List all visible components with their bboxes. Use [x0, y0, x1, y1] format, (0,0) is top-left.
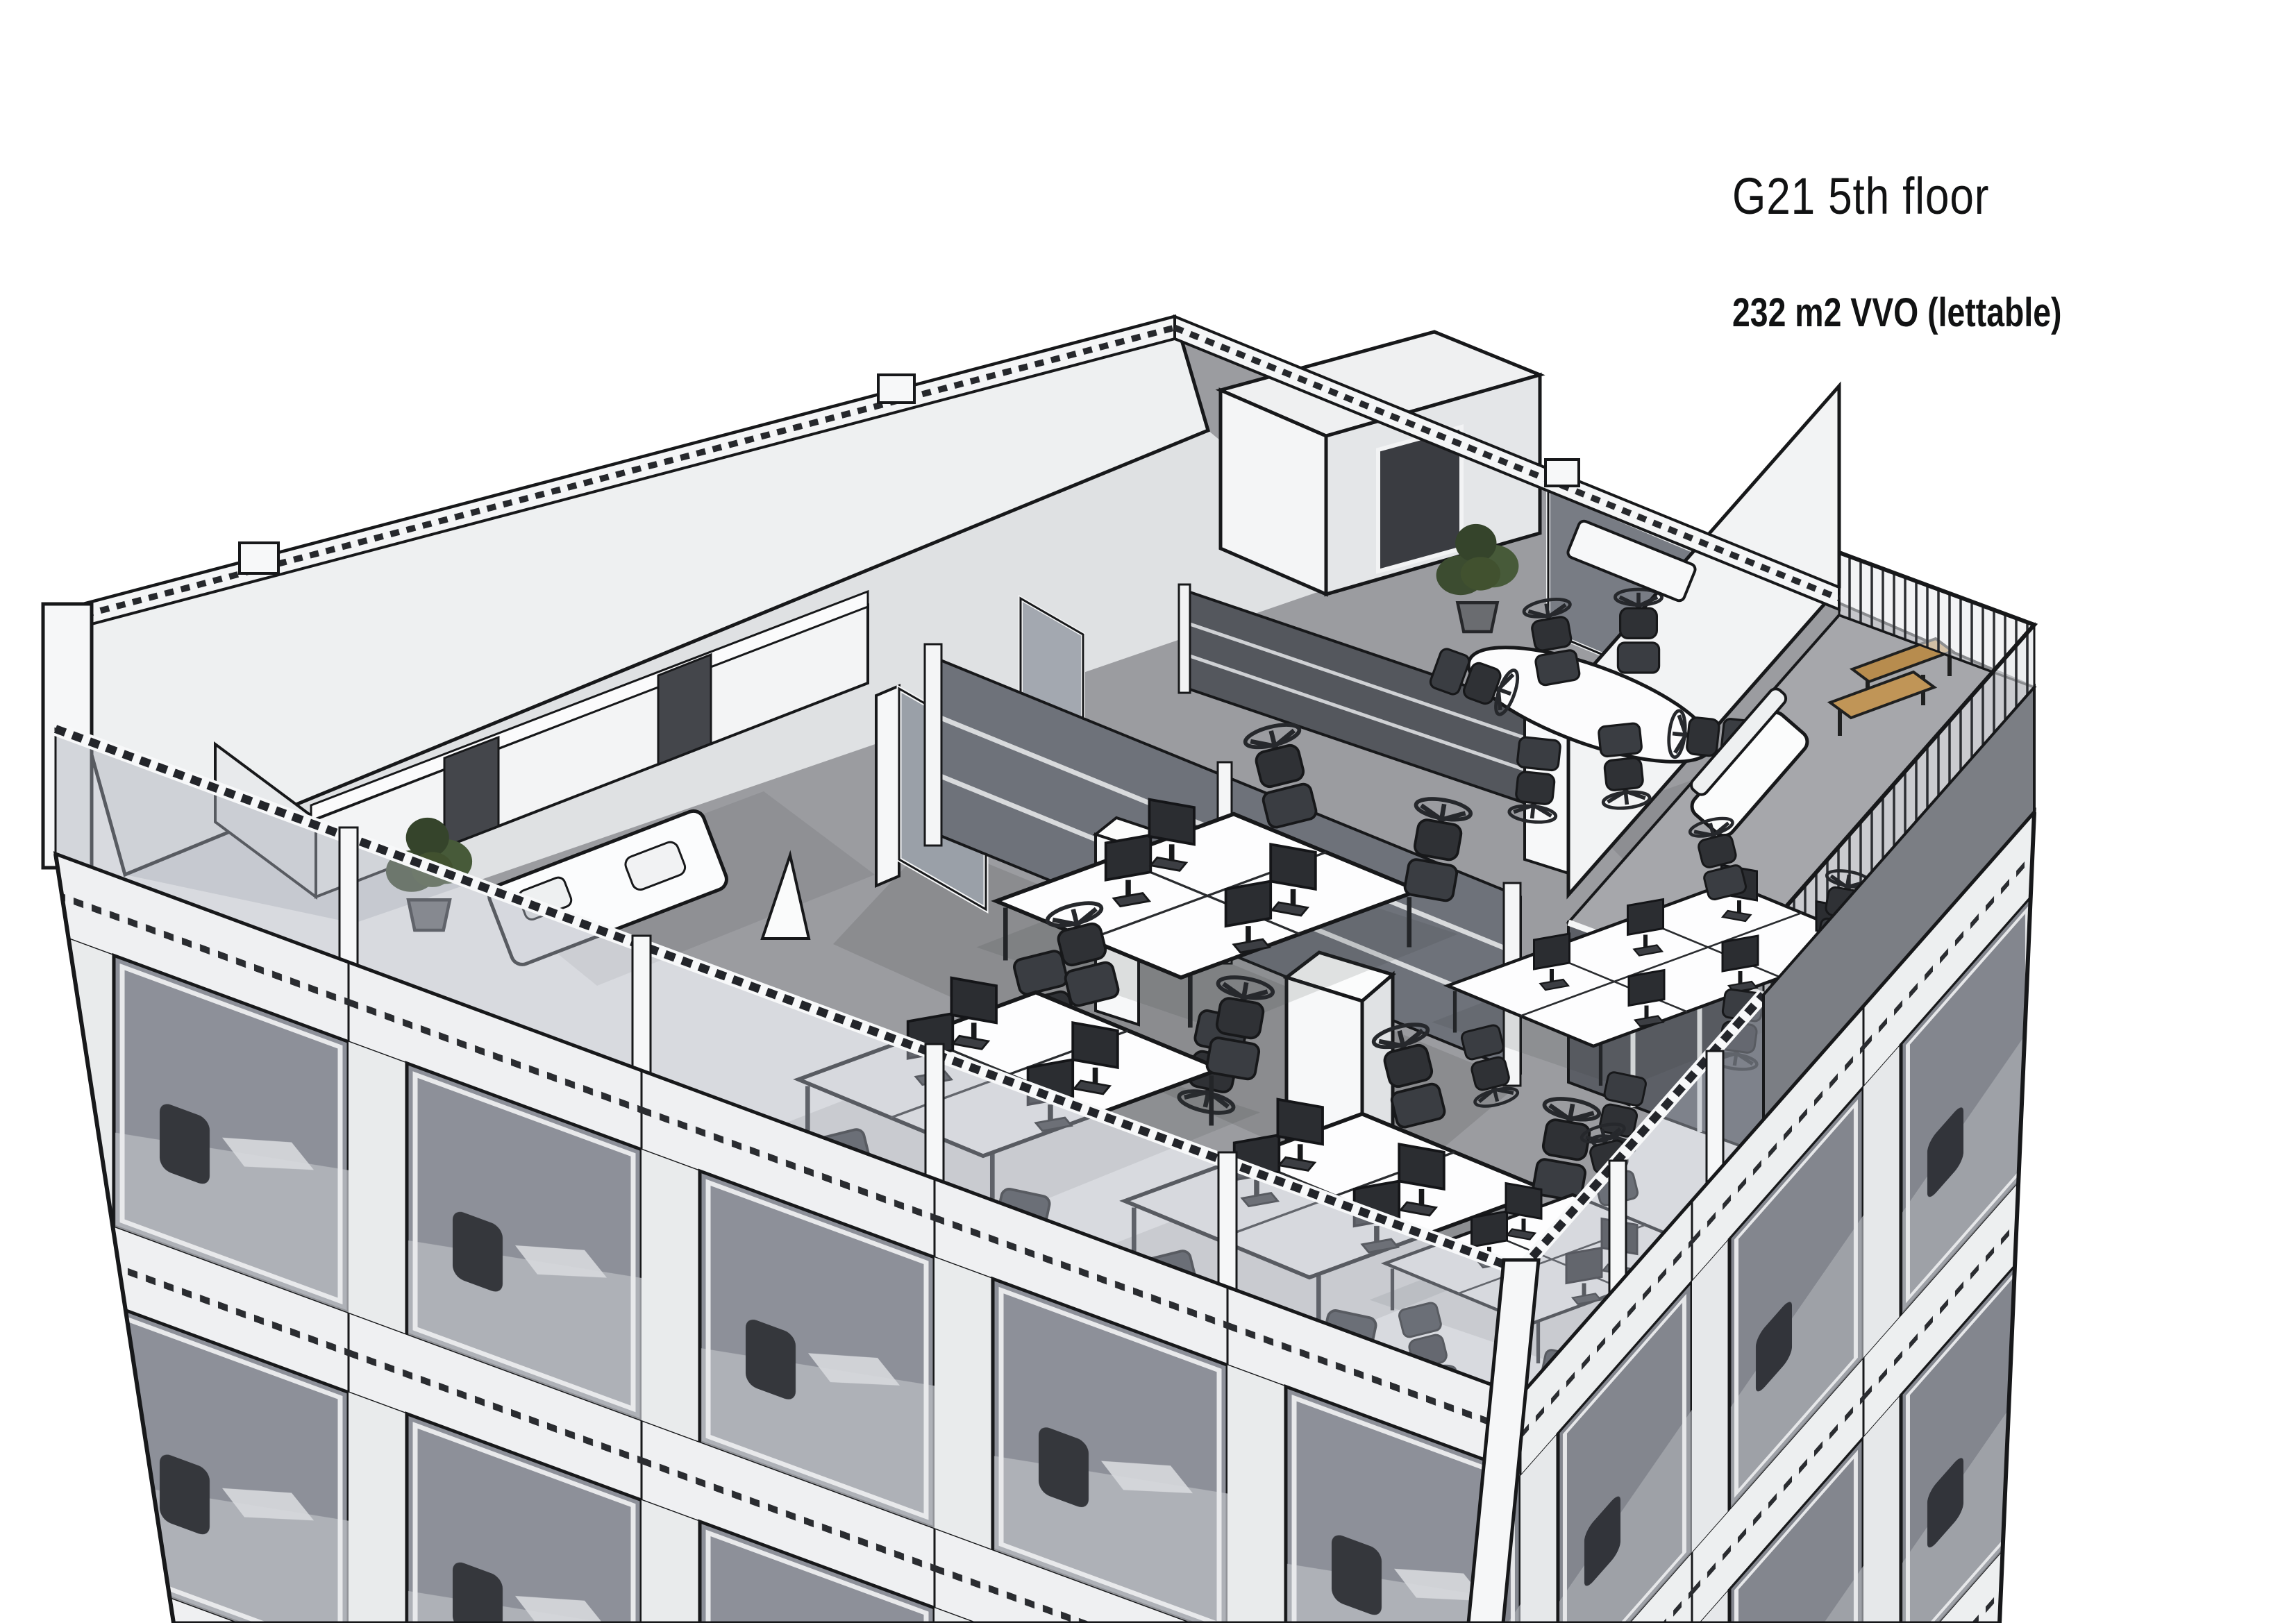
building-rendering — [0, 0, 2296, 1623]
parapet-box-3 — [1545, 460, 1579, 486]
page-title: G21 5th floor — [1732, 167, 1989, 226]
parapet-box-2 — [878, 375, 914, 403]
parapet-box-1 — [240, 543, 278, 573]
page-subtitle: 232 m2 VVO (lettable) — [1732, 289, 2062, 336]
